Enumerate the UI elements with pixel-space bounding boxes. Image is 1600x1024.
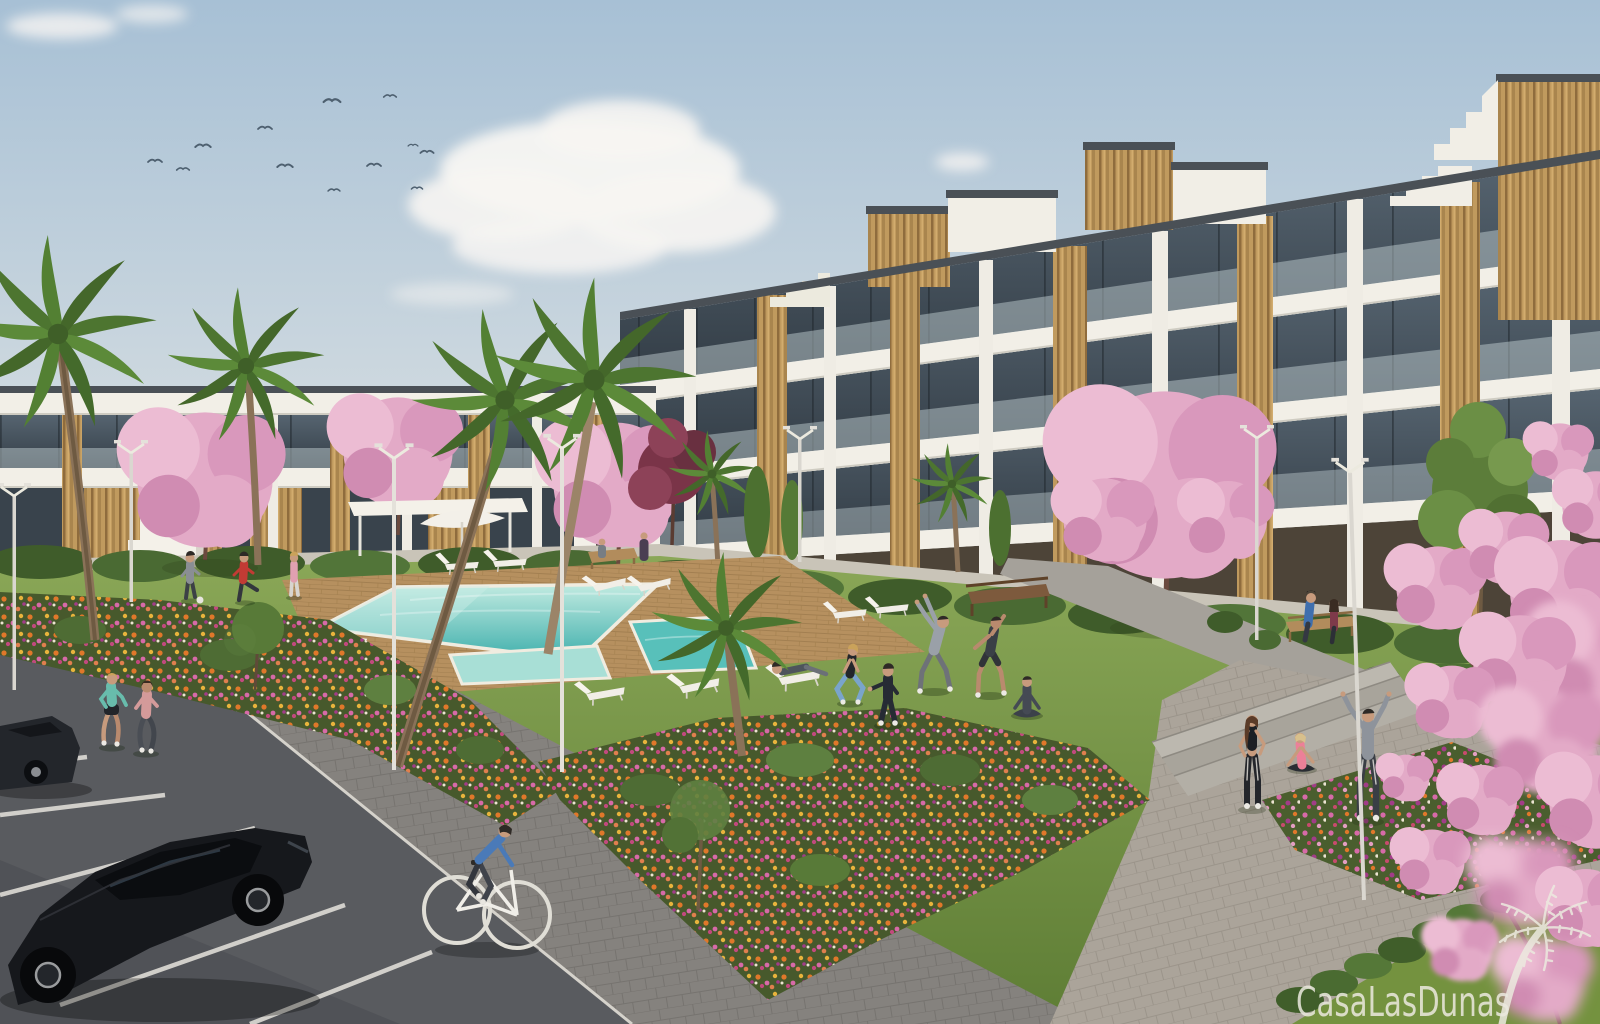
watermark-text: CasaLasDunas xyxy=(1296,978,1510,1024)
render-canvas: CasaLasDunas xyxy=(0,0,1600,1024)
architectural-render: CasaLasDunas xyxy=(0,0,1600,1024)
